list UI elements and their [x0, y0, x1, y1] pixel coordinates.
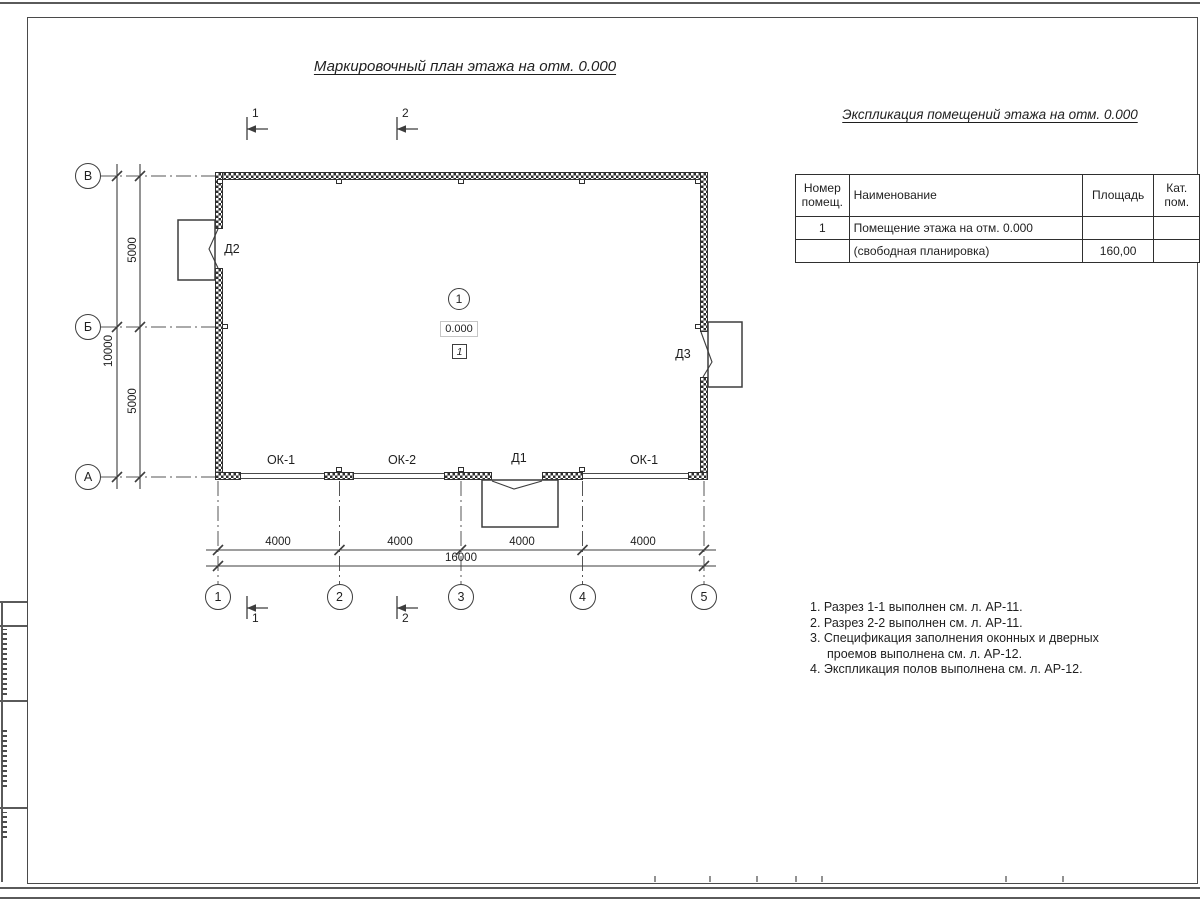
wall-right-lower [700, 377, 708, 480]
axis-label: 1 [215, 590, 222, 604]
stamp-hline-3 [0, 807, 27, 809]
table-row: 1 Помещение этажа на отм. 0.000 [796, 217, 1200, 240]
wall-bottom-pier-5 [688, 472, 708, 480]
column-mark [222, 324, 228, 329]
table-title: Экспликация помещений этажа на отм. 0.00… [795, 107, 1185, 122]
cell-room-cat [1154, 217, 1200, 240]
stamp-hline-0 [0, 601, 27, 603]
cell-room-name: (свободная планировка) [849, 240, 1082, 263]
illegible-stamp-text-2 [2, 727, 7, 787]
dim-4000-2: 4000 [370, 536, 430, 548]
drawing-frame [27, 17, 1198, 884]
axis-label: А [84, 470, 92, 484]
label-window-ok2: ОК-2 [377, 453, 427, 467]
dim-5000-lower: 5000 [127, 373, 139, 429]
room-number-bubble: 1 [448, 288, 470, 310]
dim-4000-3: 4000 [492, 536, 552, 548]
axis-label: 4 [579, 590, 586, 604]
dim-5000-upper: 5000 [127, 222, 139, 278]
col-header-name: Наименование [849, 175, 1082, 217]
notes-block: 1. Разрез 1-1 выполнен см. л. АР-11. 2. … [810, 600, 1180, 678]
dim-4000-1: 4000 [248, 536, 308, 548]
column-mark [579, 179, 585, 184]
cell-room-cat [1154, 240, 1200, 263]
cell-room-name: Помещение этажа на отм. 0.000 [849, 217, 1082, 240]
table-row: (свободная планировка) 160,00 [796, 240, 1200, 263]
sheet-outer-top-line [0, 2, 1200, 4]
stamp-hline-2 [0, 700, 27, 702]
window-ok2 [354, 473, 444, 479]
wall-left-lower [215, 268, 223, 480]
note-line: 4. Экспликация полов выполнена см. л. АР… [810, 662, 1180, 678]
wall-bottom-pier-1 [215, 472, 241, 480]
cell-room-num: 1 [796, 217, 850, 240]
col-header-number: Номер помещ. [796, 175, 850, 217]
axis-label: В [84, 169, 92, 183]
axis-bubble-5: 5 [691, 584, 717, 610]
table-header-row: Номер помещ. Наименование Площадь Кат. п… [796, 175, 1200, 217]
illegible-stamp-text-3 [2, 812, 7, 838]
cell-room-num [796, 240, 850, 263]
stamp-hline-1 [0, 625, 27, 627]
drawing-sheet: Маркировочный план этажа на отм. 0.000 Э… [0, 0, 1200, 900]
section-num-bottom-2: 2 [402, 611, 409, 625]
label-window-ok1-left: ОК-1 [256, 453, 306, 467]
window-ok1-right [583, 473, 688, 479]
axis-label: 2 [336, 590, 343, 604]
axis-bubble-4: 4 [570, 584, 596, 610]
window-ok1-left [241, 473, 324, 479]
note-line: 2. Разрез 2-2 выполнен см. л. АР-11. [810, 616, 1180, 632]
plan-title: Маркировочный план этажа на отм. 0.000 [280, 58, 650, 75]
axis-label: Б [84, 320, 92, 334]
room-number: 1 [456, 292, 463, 306]
section-num-top-2: 2 [402, 106, 409, 120]
label-door-d3: Д3 [661, 347, 705, 361]
dim-4000-4: 4000 [613, 536, 673, 548]
column-mark [458, 467, 464, 472]
note-line-continuation: проемов выполнена см. л. АР-12. [810, 647, 1180, 663]
label-window-ok1-right: ОК-1 [619, 453, 669, 467]
section-num-bottom-1: 1 [252, 611, 259, 625]
axis-bubble-3: 3 [448, 584, 474, 610]
sheet-outer-bottom-line-1 [0, 887, 1200, 889]
sheet-outer-bottom-line-2 [0, 897, 1200, 899]
elevation-mark: 0.000 [440, 321, 478, 337]
column-mark [217, 179, 223, 184]
wall-bottom-pier-2 [324, 472, 354, 480]
label-door-d1: Д1 [494, 451, 544, 465]
label-door-d2: Д2 [210, 242, 254, 256]
col-header-area: Площадь [1082, 175, 1154, 217]
cell-room-area: 160,00 [1082, 240, 1154, 263]
dim-10000: 10000 [103, 323, 115, 379]
axis-bubble-1: 1 [205, 584, 231, 610]
axis-label: 5 [701, 590, 708, 604]
column-mark [695, 324, 701, 329]
floor-type-mark: 1 [452, 344, 467, 359]
col-header-cat: Кат. пом. [1154, 175, 1200, 217]
axis-label: 3 [458, 590, 465, 604]
dim-16000: 16000 [426, 552, 496, 564]
wall-right-upper [700, 172, 708, 332]
wall-bottom-pier-4 [542, 472, 583, 480]
cell-room-area [1082, 217, 1154, 240]
wall-bottom-pier-3 [444, 472, 492, 480]
column-mark [695, 179, 701, 184]
illegible-stamp-text-1 [2, 629, 7, 695]
column-mark [579, 467, 585, 472]
explication-table: Номер помещ. Наименование Площадь Кат. п… [795, 174, 1200, 263]
note-line: 1. Разрез 1-1 выполнен см. л. АР-11. [810, 600, 1180, 616]
axis-bubble-a: А [75, 464, 101, 490]
section-num-top-1: 1 [252, 106, 259, 120]
column-mark [458, 179, 464, 184]
column-mark [336, 179, 342, 184]
column-mark [336, 467, 342, 472]
axis-bubble-2: 2 [327, 584, 353, 610]
note-line: 3. Спецификация заполнения оконных и две… [810, 631, 1180, 647]
axis-bubble-v: В [75, 163, 101, 189]
axis-bubble-b: Б [75, 314, 101, 340]
